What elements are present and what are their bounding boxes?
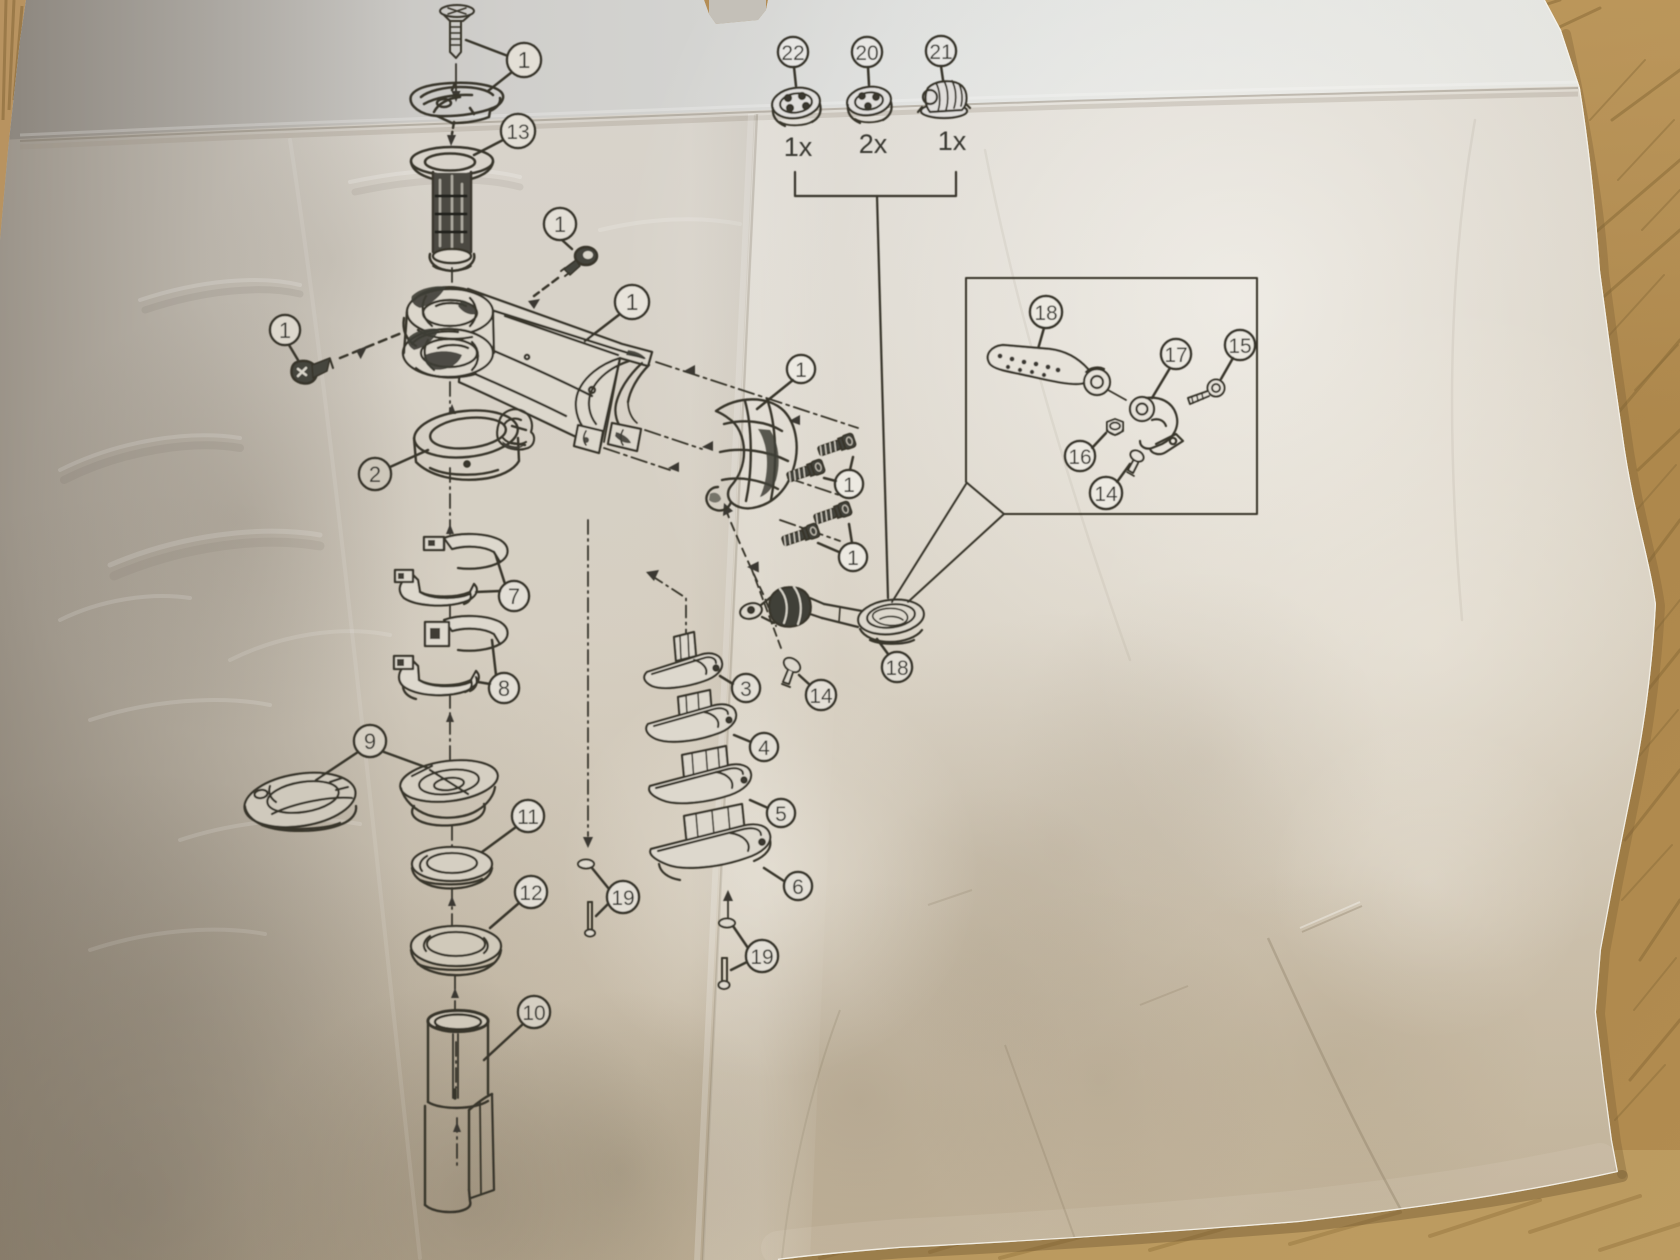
svg-text:12: 12 xyxy=(519,882,542,905)
svg-text:22: 22 xyxy=(781,42,804,65)
svg-text:1: 1 xyxy=(554,212,566,237)
svg-text:4: 4 xyxy=(758,737,770,760)
svg-text:21: 21 xyxy=(929,41,952,64)
svg-text:19: 19 xyxy=(750,946,773,969)
svg-text:2: 2 xyxy=(369,462,381,487)
svg-text:18: 18 xyxy=(885,657,908,680)
svg-text:17: 17 xyxy=(1164,344,1187,367)
svg-text:18: 18 xyxy=(1034,302,1057,325)
svg-text:1: 1 xyxy=(279,318,291,343)
svg-text:9: 9 xyxy=(364,729,376,754)
svg-text:1: 1 xyxy=(795,359,807,382)
svg-text:10: 10 xyxy=(522,1002,545,1025)
svg-text:16: 16 xyxy=(1068,446,1091,469)
svg-text:1: 1 xyxy=(626,289,639,315)
svg-text:15: 15 xyxy=(1228,335,1251,358)
svg-text:1: 1 xyxy=(518,47,531,73)
svg-text:5: 5 xyxy=(775,803,787,826)
svg-text:6: 6 xyxy=(792,876,804,899)
svg-text:20: 20 xyxy=(855,42,878,65)
svg-text:13: 13 xyxy=(506,121,529,144)
svg-text:14: 14 xyxy=(1094,483,1118,506)
svg-text:19: 19 xyxy=(611,887,634,910)
svg-text:11: 11 xyxy=(517,806,539,829)
svg-text:1: 1 xyxy=(843,474,855,497)
svg-text:2x: 2x xyxy=(859,129,888,159)
svg-text:1: 1 xyxy=(847,547,859,570)
svg-text:14: 14 xyxy=(809,685,833,708)
svg-text:1x: 1x xyxy=(938,126,967,156)
svg-text:7: 7 xyxy=(508,584,520,609)
svg-text:3: 3 xyxy=(740,678,752,701)
svg-text:8: 8 xyxy=(498,676,510,701)
svg-text:1x: 1x xyxy=(784,132,813,162)
